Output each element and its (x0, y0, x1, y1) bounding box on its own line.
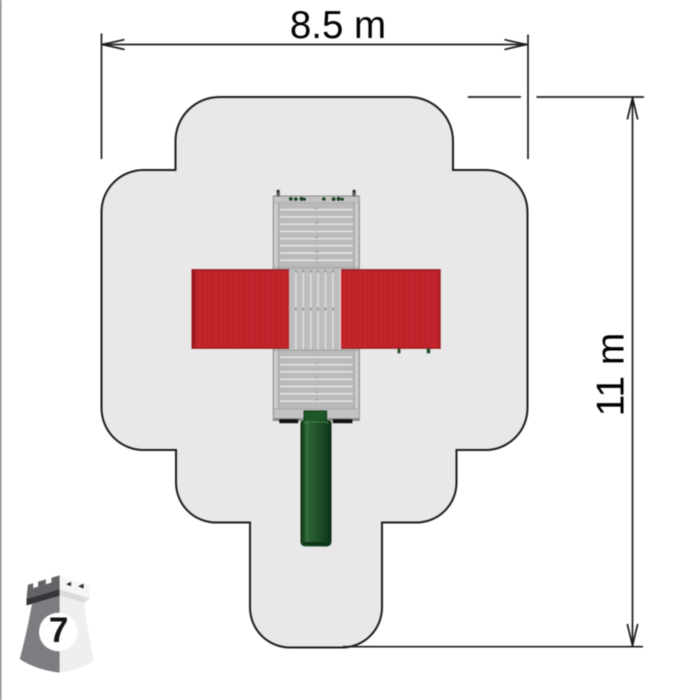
svg-text:7: 7 (49, 611, 68, 650)
svg-text:11 m: 11 m (590, 333, 633, 417)
svg-text:8.5 m: 8.5 m (290, 4, 386, 47)
